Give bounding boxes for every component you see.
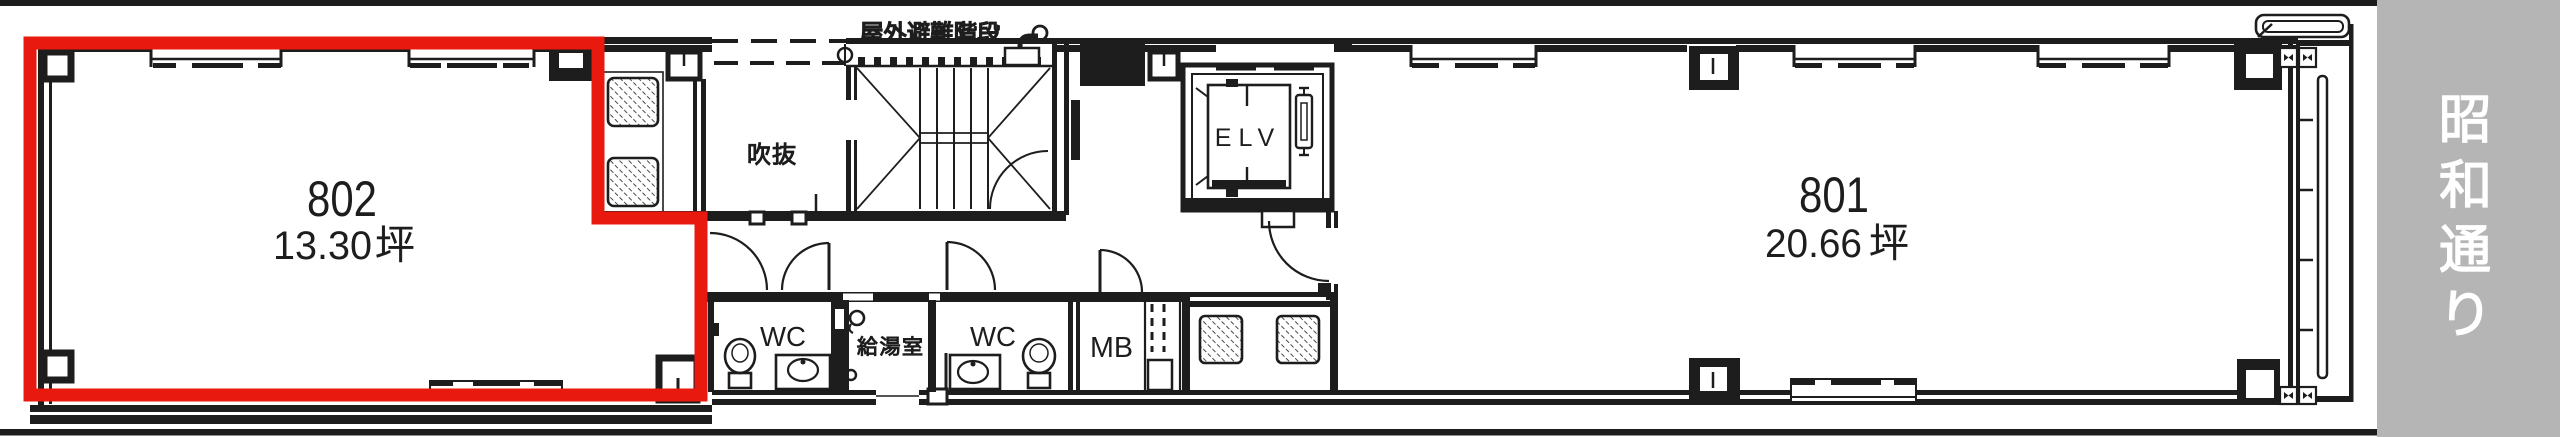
svg-text:WC: WC [760,321,806,352]
svg-text:801: 801 [1799,167,1869,223]
svg-text:ELV: ELV [1215,124,1281,152]
svg-text:MB: MB [1090,332,1133,364]
svg-text:WC: WC [970,321,1016,352]
svg-text:13.30: 13.30 [273,224,372,268]
svg-text:802: 802 [307,171,377,227]
svg-text:20.66: 20.66 [1765,222,1862,266]
